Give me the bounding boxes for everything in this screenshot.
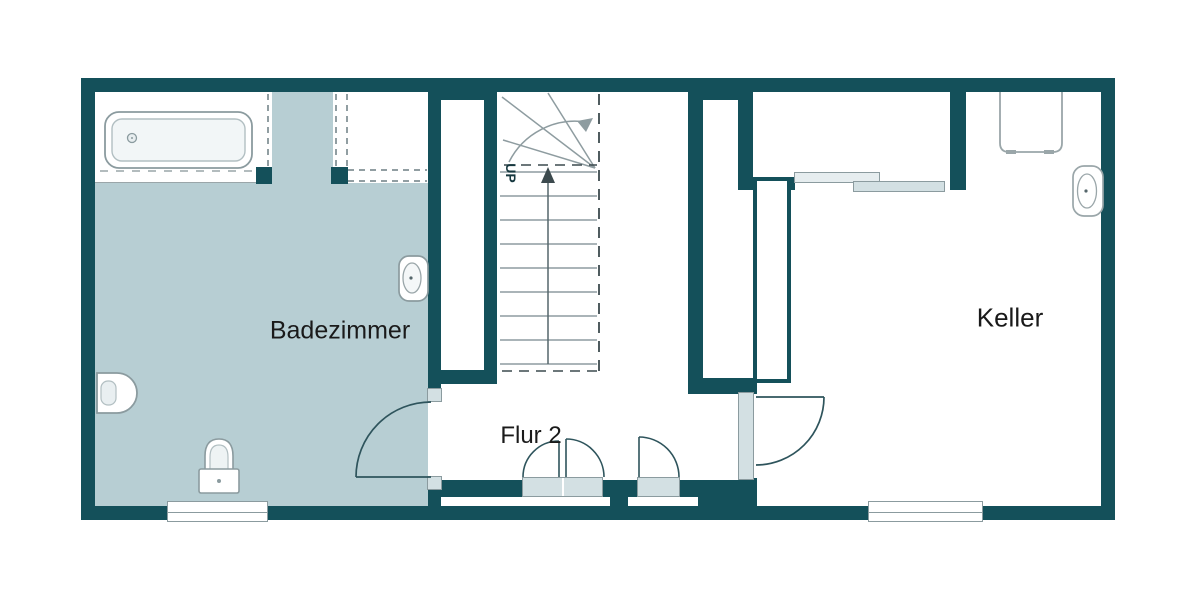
keller-sink-icon — [1073, 166, 1103, 216]
staircase — [500, 93, 599, 374]
curve-arrow-head — [577, 118, 593, 132]
shower-glass-screen — [336, 94, 427, 181]
closet-door-swing — [639, 437, 679, 477]
walk-line-curve — [509, 121, 586, 162]
keller-door-swing — [756, 397, 824, 465]
bathroom-door-swing — [356, 402, 431, 477]
floor-plan: Badezimmer Flur 2 Keller UP — [0, 0, 1200, 600]
bidet-icon — [97, 373, 137, 413]
appliance-icon — [1000, 92, 1062, 154]
room-label-badezimmer: Badezimmer — [270, 317, 410, 346]
up-arrow-head — [541, 167, 555, 183]
stairs-up-label: UP — [503, 163, 519, 182]
bathtub-icon — [100, 112, 253, 171]
toilet-icon — [199, 439, 239, 493]
room-label-flur2: Flur 2 — [500, 422, 561, 450]
room-label-keller: Keller — [977, 303, 1043, 334]
bathroom-sink-icon — [399, 256, 428, 301]
fixtures-layer — [0, 0, 1200, 600]
